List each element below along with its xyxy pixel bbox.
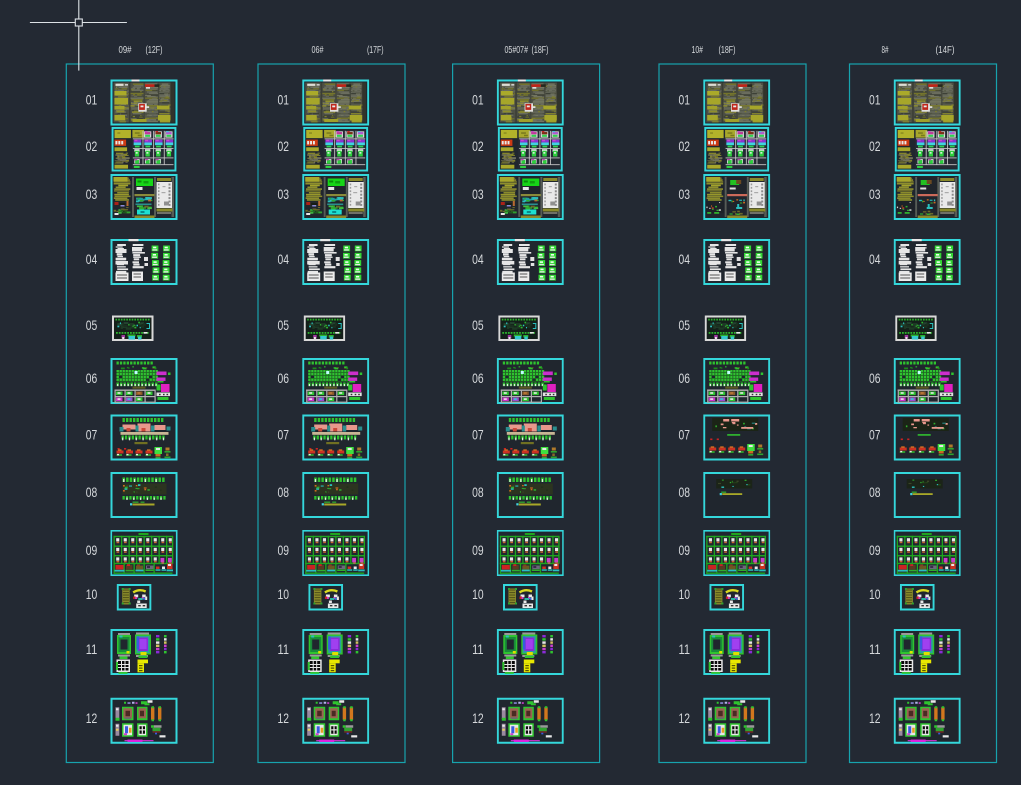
svg-text:05: 05 <box>86 317 98 333</box>
svg-text:(12F): (12F) <box>146 45 163 56</box>
svg-text:(17F): (17F) <box>367 45 384 56</box>
svg-text:12: 12 <box>869 710 881 726</box>
svg-text:12: 12 <box>278 710 290 726</box>
svg-text:01: 01 <box>86 92 98 108</box>
svg-text:04: 04 <box>278 251 290 267</box>
svg-text:09: 09 <box>679 542 691 558</box>
svg-text:08: 08 <box>472 484 484 500</box>
svg-text:07: 07 <box>86 427 98 443</box>
svg-text:07: 07 <box>472 427 484 443</box>
svg-text:10: 10 <box>679 586 691 602</box>
svg-text:04: 04 <box>869 251 881 267</box>
svg-text:07: 07 <box>278 427 290 443</box>
svg-text:03: 03 <box>869 186 881 202</box>
svg-text:03: 03 <box>86 186 98 202</box>
svg-text:08: 08 <box>679 484 691 500</box>
svg-text:06#: 06# <box>312 45 324 56</box>
svg-text:02: 02 <box>472 138 484 154</box>
svg-text:09: 09 <box>278 542 290 558</box>
svg-text:03: 03 <box>278 186 290 202</box>
svg-text:06: 06 <box>472 370 484 386</box>
svg-text:08: 08 <box>86 484 98 500</box>
svg-text:01: 01 <box>278 92 290 108</box>
svg-text:02: 02 <box>679 138 691 154</box>
svg-text:(14F): (14F) <box>936 45 955 56</box>
svg-text:04: 04 <box>472 251 484 267</box>
svg-text:05: 05 <box>679 317 691 333</box>
svg-text:02: 02 <box>278 138 290 154</box>
svg-text:11: 11 <box>869 641 881 657</box>
svg-text:09: 09 <box>86 542 98 558</box>
svg-text:(18F): (18F) <box>532 45 549 56</box>
svg-text:06: 06 <box>86 370 98 386</box>
svg-text:10: 10 <box>472 586 484 602</box>
svg-text:02: 02 <box>869 138 881 154</box>
svg-text:09#: 09# <box>119 45 132 56</box>
svg-text:04: 04 <box>679 251 691 267</box>
svg-text:03: 03 <box>679 186 691 202</box>
svg-text:12: 12 <box>86 710 98 726</box>
svg-text:09: 09 <box>472 542 484 558</box>
svg-text:11: 11 <box>86 641 98 657</box>
svg-text:06: 06 <box>869 370 881 386</box>
svg-text:01: 01 <box>472 92 484 108</box>
svg-text:11: 11 <box>679 641 691 657</box>
svg-text:06: 06 <box>679 370 691 386</box>
svg-text:10#: 10# <box>692 45 704 56</box>
svg-text:03: 03 <box>472 186 484 202</box>
svg-text:08: 08 <box>869 484 881 500</box>
svg-text:07: 07 <box>869 427 881 443</box>
svg-text:01: 01 <box>869 92 881 108</box>
svg-text:11: 11 <box>278 641 290 657</box>
svg-text:05#07#: 05#07# <box>505 45 529 56</box>
svg-text:02: 02 <box>86 138 98 154</box>
svg-text:07: 07 <box>679 427 691 443</box>
svg-text:05: 05 <box>472 317 484 333</box>
svg-text:12: 12 <box>472 710 484 726</box>
svg-text:01: 01 <box>679 92 691 108</box>
svg-text:04: 04 <box>86 251 98 267</box>
svg-text:10: 10 <box>86 586 98 602</box>
svg-text:10: 10 <box>869 586 881 602</box>
svg-text:11: 11 <box>472 641 484 657</box>
svg-text:8#: 8# <box>882 45 889 56</box>
svg-text:06: 06 <box>278 370 290 386</box>
svg-text:08: 08 <box>278 484 290 500</box>
svg-text:(18F): (18F) <box>719 45 736 56</box>
svg-text:10: 10 <box>278 586 290 602</box>
svg-text:09: 09 <box>869 542 881 558</box>
svg-text:05: 05 <box>278 317 290 333</box>
svg-text:12: 12 <box>679 710 691 726</box>
